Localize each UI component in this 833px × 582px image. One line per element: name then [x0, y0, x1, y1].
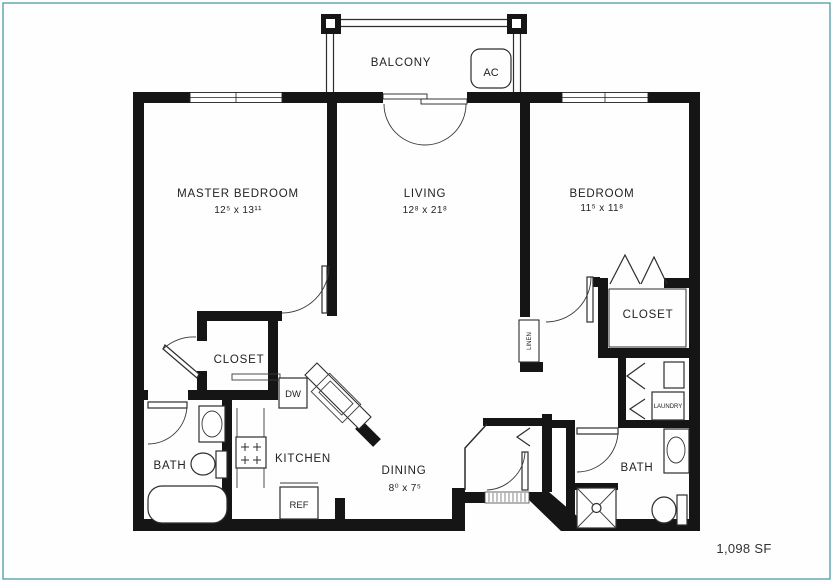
- wall: [327, 103, 337, 316]
- wall: [483, 418, 542, 426]
- door-leaf: [577, 428, 618, 434]
- wall: [566, 427, 575, 531]
- bedroom-dims: 11⁵ x 11⁸: [580, 203, 623, 214]
- laundry-label: LAUNDRY: [654, 404, 683, 410]
- wall: [268, 311, 278, 400]
- ac-label: AC: [483, 67, 498, 79]
- kitchen-label: KITCHEN: [275, 453, 331, 465]
- wall: [282, 92, 383, 103]
- toilet-icon: [652, 497, 676, 523]
- wall: [664, 278, 689, 288]
- master-bedroom-label: MASTER BEDROOM: [177, 188, 299, 200]
- master-bedroom-dims: 12⁵ x 13¹¹: [214, 205, 262, 216]
- railing-post: [512, 19, 521, 28]
- balcony-label: BALCONY: [371, 57, 432, 69]
- master-bath-label: BATH: [153, 460, 186, 472]
- wall: [197, 311, 207, 341]
- balcony-door-panel: [421, 99, 467, 104]
- railing-post: [326, 19, 335, 28]
- door-leaf: [587, 277, 593, 322]
- wall: [598, 348, 700, 358]
- dining-label: DINING: [381, 465, 426, 477]
- wall: [467, 92, 562, 103]
- entry-threshold: [485, 492, 529, 503]
- wall: [335, 498, 345, 531]
- linen-label: LINEN: [527, 332, 533, 350]
- bedroom-closet-label: CLOSET: [623, 309, 674, 321]
- wall: [520, 362, 543, 372]
- living-dims: 12⁸ x 21⁸: [403, 205, 448, 216]
- bathtub-icon: [148, 486, 227, 523]
- wall: [552, 420, 575, 428]
- wall: [618, 420, 689, 428]
- dining-dims: 8⁰ x 7⁵: [389, 483, 422, 494]
- floor-plan-page: AC BALCONY: [0, 0, 833, 582]
- sink-icon: [191, 453, 215, 475]
- door-leaf: [148, 402, 187, 408]
- area-label: 1,098 SF: [716, 541, 771, 556]
- dishwasher-label: DW: [285, 389, 301, 400]
- toilet-icon: [677, 495, 687, 525]
- wall: [689, 92, 700, 531]
- wall: [452, 492, 485, 503]
- wall: [144, 390, 148, 400]
- bath-label: BATH: [620, 462, 653, 474]
- wall: [542, 414, 552, 492]
- shower-drain-icon: [592, 504, 601, 513]
- wall: [133, 92, 144, 531]
- wall: [598, 278, 608, 358]
- living-label: LIVING: [404, 188, 447, 200]
- floor-plan-drawing: AC BALCONY: [0, 0, 833, 582]
- wall: [520, 103, 530, 317]
- stove-icon: [236, 437, 266, 468]
- refrigerator-label: REF: [290, 500, 309, 511]
- master-closet-label: CLOSET: [214, 354, 265, 366]
- page-background: [0, 0, 833, 582]
- bedroom-label: BEDROOM: [569, 188, 634, 200]
- sink-icon: [216, 451, 227, 478]
- door-leaf: [522, 452, 528, 490]
- wall: [618, 358, 626, 428]
- balcony-door-panel: [383, 94, 427, 99]
